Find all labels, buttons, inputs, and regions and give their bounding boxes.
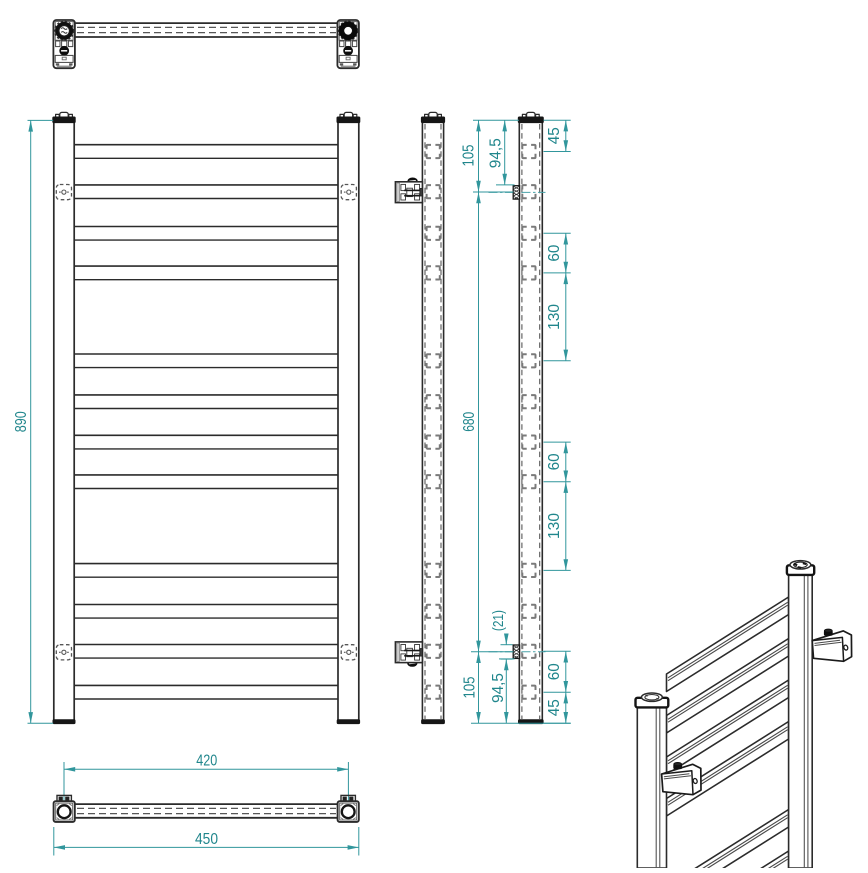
svg-text:60: 60 [546,453,563,470]
svg-text:130: 130 [546,304,563,330]
svg-text:45: 45 [546,699,563,716]
svg-text:60: 60 [546,663,563,680]
svg-text:60: 60 [546,245,563,262]
svg-text:45: 45 [546,127,563,144]
svg-text:890: 890 [13,411,30,432]
svg-text:680: 680 [461,412,478,432]
svg-text:(21): (21) [491,610,507,631]
svg-text:105: 105 [461,145,478,167]
svg-text:105: 105 [461,677,478,699]
svg-text:420: 420 [196,753,217,770]
svg-text:94,5: 94,5 [487,138,504,168]
svg-text:130: 130 [546,513,563,539]
svg-text:450: 450 [195,831,218,848]
svg-text:94,5: 94,5 [490,673,507,703]
